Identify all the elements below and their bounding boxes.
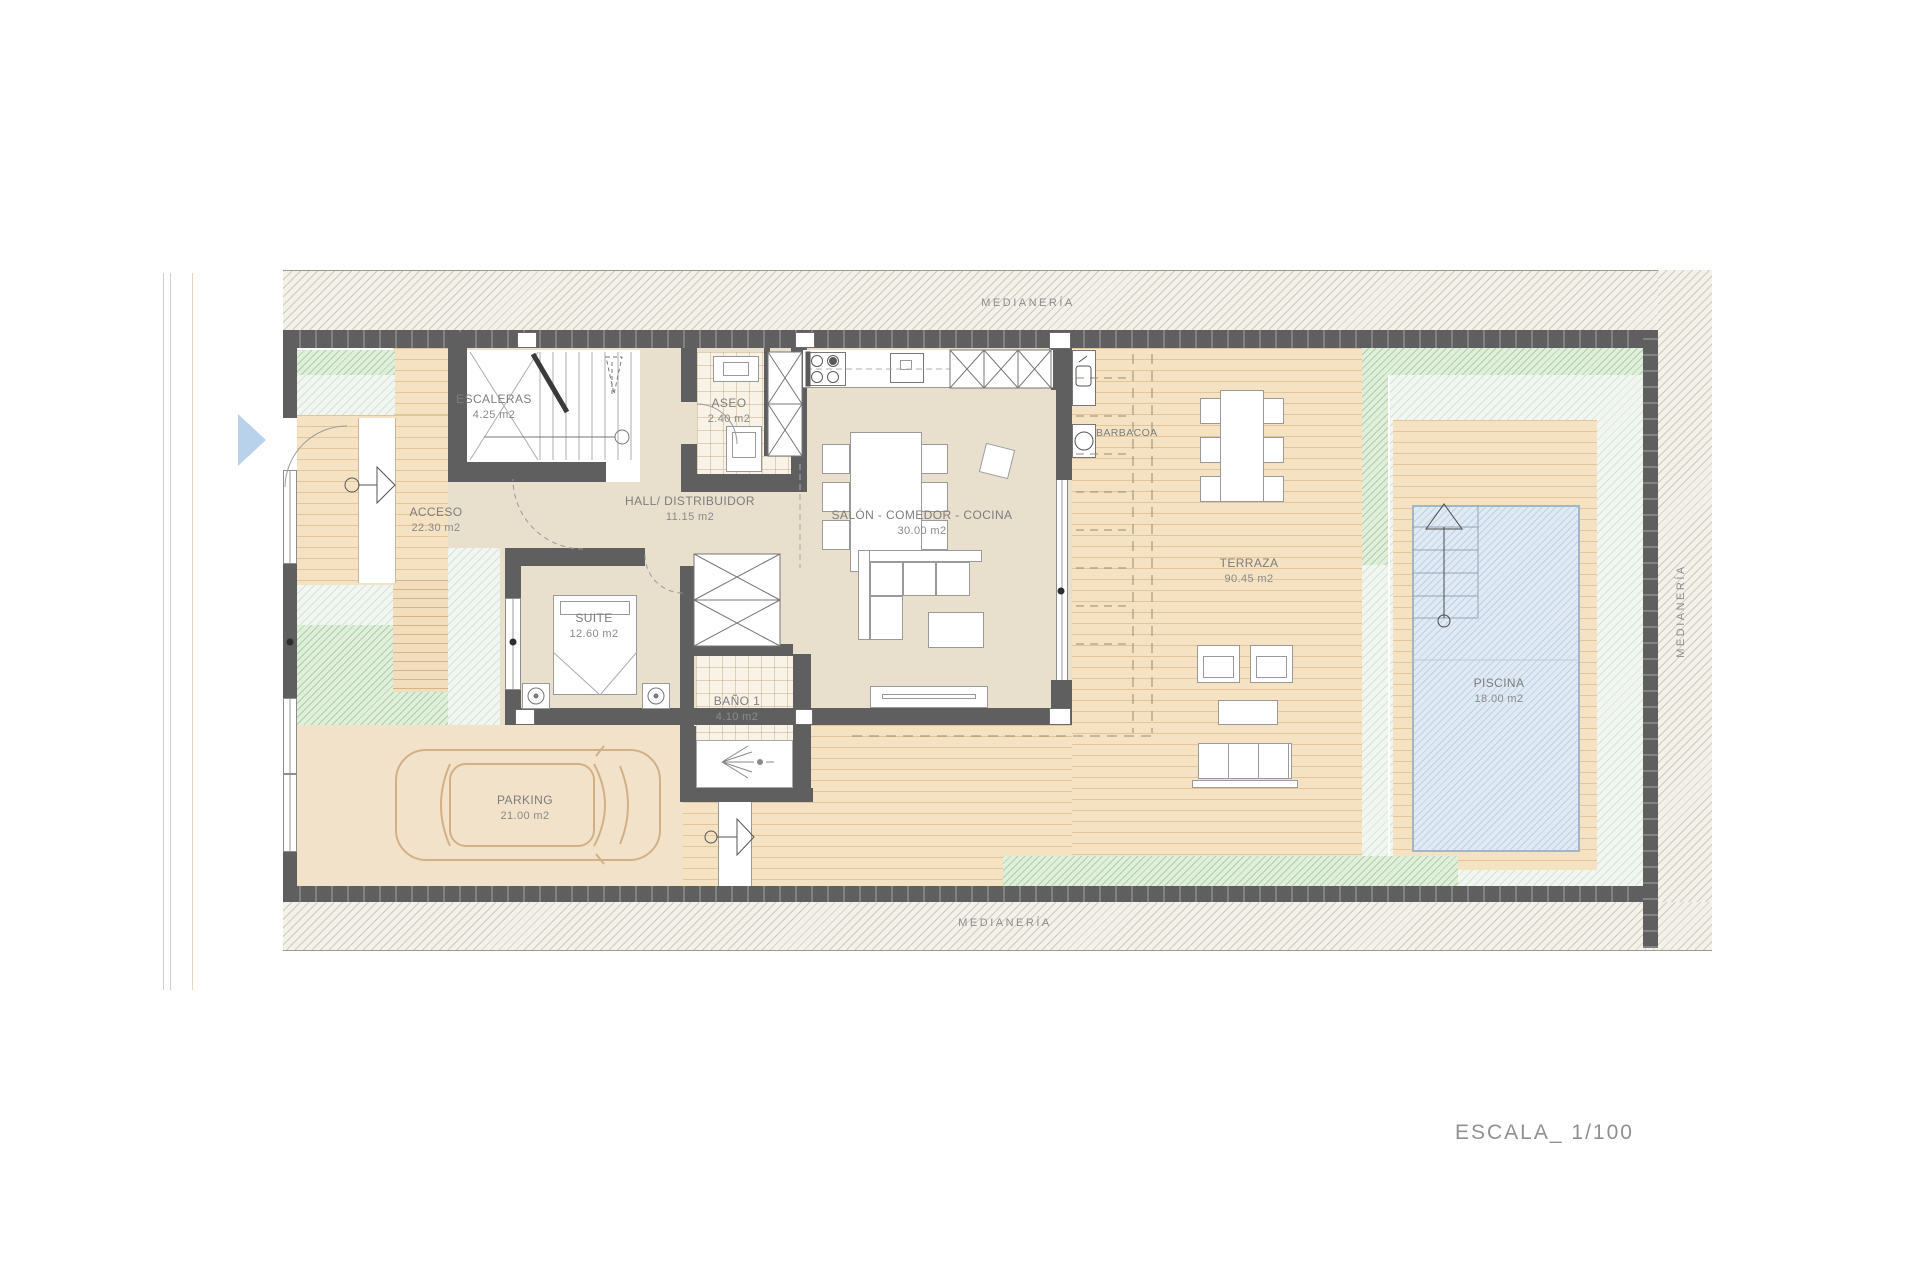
window xyxy=(505,598,521,690)
boundary-label-top: MEDIANERÍA xyxy=(948,297,1108,309)
armchair-seat xyxy=(1256,656,1287,678)
page-edge-line xyxy=(192,273,193,990)
wall xyxy=(680,644,793,656)
wall xyxy=(505,548,521,598)
garden-patch xyxy=(297,375,395,417)
door-opening xyxy=(606,462,640,482)
wall xyxy=(681,474,807,492)
garden-strip-bottom xyxy=(1003,856,1458,886)
wall-post xyxy=(795,709,813,725)
stove xyxy=(806,352,846,386)
wall xyxy=(448,462,606,482)
dining-chair xyxy=(920,444,948,474)
tv-unit-slot xyxy=(882,694,976,699)
terrace-chair xyxy=(1200,437,1222,463)
sofa-cushion xyxy=(870,562,903,596)
nightstand xyxy=(642,683,670,709)
scale-label: ESCALA_ 1/100 xyxy=(1455,1121,1634,1145)
wall xyxy=(283,330,297,418)
room-label-acceso: ACCESO 22.30 m2 xyxy=(376,505,496,535)
sofa-arm xyxy=(858,550,870,640)
barbecue-burner-unit xyxy=(1072,424,1096,458)
wall xyxy=(283,330,1655,348)
wall xyxy=(283,852,297,902)
room-label-parking: PARKING 21.00 m2 xyxy=(455,793,595,823)
front-door-path xyxy=(718,802,752,886)
room-label-bano1: BAÑO 1 4.10 m2 xyxy=(677,694,797,724)
wall-post xyxy=(515,709,535,725)
garden-patch xyxy=(448,548,500,725)
page-edge-line xyxy=(163,273,164,990)
room-label-barbacoa: BARBACOA xyxy=(1096,427,1186,441)
room-label-aseo: ASEO 2.40 m2 xyxy=(669,396,789,426)
terrace-table xyxy=(1220,390,1264,502)
sofa-back xyxy=(858,550,982,562)
floor-plan-page: ESCALERAS 4.25 m2 ASEO 2.40 m2 HALL/ DIS… xyxy=(0,0,1920,1280)
wall-post xyxy=(795,332,815,348)
washbasin-bowl xyxy=(723,362,749,376)
wardrobe-area xyxy=(694,554,780,646)
sofa-cushion xyxy=(903,562,936,596)
side-table xyxy=(1218,700,1278,725)
window xyxy=(283,774,297,852)
boundary-label-bottom: MEDIANERÍA xyxy=(925,917,1085,929)
wall xyxy=(505,548,645,566)
room-label-escaleras: ESCALERAS 4.25 m2 xyxy=(424,392,564,422)
wall xyxy=(793,654,811,802)
room-label-piscina: PISCINA 18.00 m2 xyxy=(1429,676,1569,706)
nightstand xyxy=(522,683,550,709)
page-edge-line xyxy=(170,273,171,990)
wall xyxy=(1056,330,1072,480)
wall xyxy=(1643,330,1658,948)
wall xyxy=(681,348,697,402)
garden-patch xyxy=(297,350,395,375)
oven-knob xyxy=(900,360,912,370)
room-label-terraza: TERRAZA 90.45 m2 xyxy=(1179,556,1319,586)
entrance-arrow-icon xyxy=(238,414,266,466)
armchair-seat xyxy=(1203,656,1234,678)
sun-lounger-base xyxy=(1192,780,1298,788)
garden-patch xyxy=(297,585,395,625)
wall xyxy=(283,886,1658,902)
barbecue-sink-unit xyxy=(1072,350,1096,406)
terrace-chair xyxy=(1262,476,1284,502)
coffee-table xyxy=(928,612,984,648)
window xyxy=(283,470,297,564)
room-label-hall: HALL/ DISTRIBUIDOR 11.15 m2 xyxy=(570,494,810,524)
dining-chair xyxy=(822,444,850,474)
terrace-chair xyxy=(1262,437,1284,463)
garden-strip xyxy=(1362,375,1388,565)
wall-post xyxy=(1049,708,1071,725)
sofa-cushion xyxy=(936,562,970,596)
garden-strip xyxy=(1362,565,1388,856)
room-label-salon: SALÓN - COMEDOR - COCINA 30.00 m2 xyxy=(792,508,1052,538)
room-label-suite: SUITE 12.60 m2 xyxy=(534,611,654,641)
terrace-chair xyxy=(1200,398,1222,424)
shower-tray xyxy=(696,740,793,788)
terrace-chair xyxy=(1200,476,1222,502)
sun-lounger xyxy=(1198,743,1292,779)
toilet-seat xyxy=(732,432,756,458)
terrace-chair xyxy=(1262,398,1284,424)
window xyxy=(283,698,297,774)
boundary-label-right: MEDIANERÍA xyxy=(1675,551,1687,671)
wall xyxy=(283,564,297,698)
sofa-cushion xyxy=(870,596,903,640)
wall-post xyxy=(517,332,537,348)
wall-post xyxy=(1049,332,1071,349)
garden-patch xyxy=(297,625,395,725)
entry-path xyxy=(358,418,396,583)
